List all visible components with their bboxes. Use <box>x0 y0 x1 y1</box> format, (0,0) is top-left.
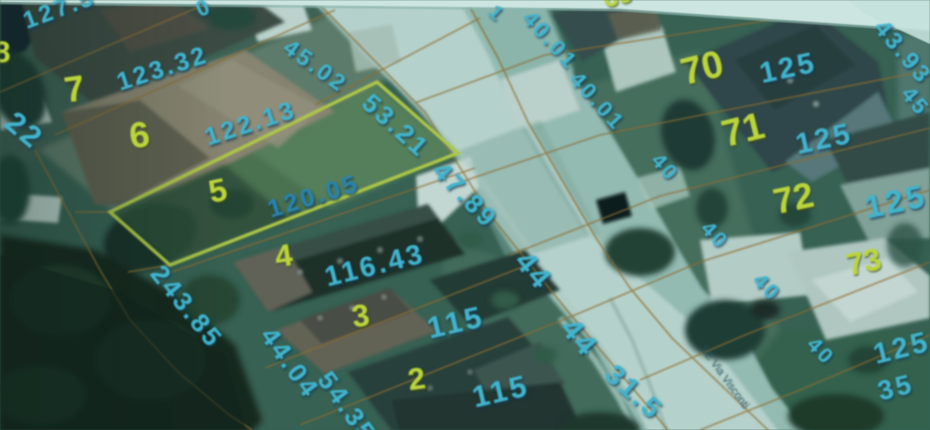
svg-text:73: 73 <box>843 241 884 282</box>
svg-text:72: 72 <box>770 174 818 222</box>
svg-text:8: 8 <box>0 36 10 69</box>
